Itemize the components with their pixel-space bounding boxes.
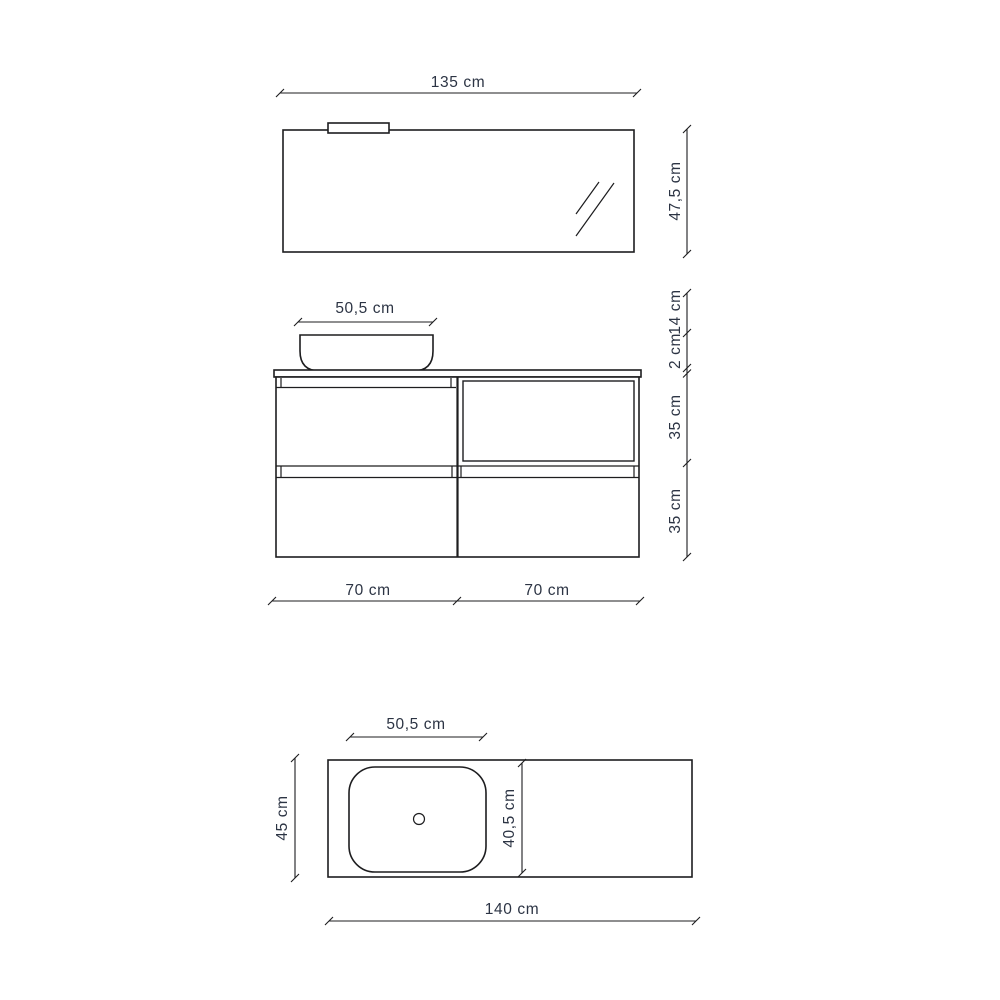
countertop-thickness-label: 2 cm (667, 333, 684, 369)
basin-depth-label: 40,5 cm (501, 788, 518, 847)
left-cabinet-width-label: 70 cm (345, 582, 390, 599)
countertop-basin-front (300, 335, 433, 371)
mirror-width-label: 135 cm (431, 74, 485, 91)
basin-width-top-label: 50,5 cm (386, 716, 445, 733)
mirror-height-label: 47,5 cm (667, 161, 684, 220)
vanity-front-view: 50,5 cm 14 cm 2 cm 35 cm (268, 289, 691, 605)
dim-mirror-height: 47,5 cm (667, 125, 691, 258)
right-cabinet-width-label: 70 cm (524, 582, 569, 599)
dim-countertop-width: 140 cm (325, 901, 700, 925)
countertop-front (274, 370, 641, 377)
mirror (283, 130, 634, 252)
countertop-width-label: 140 cm (485, 901, 539, 918)
dim-mirror-width: 135 cm (276, 74, 641, 97)
countertop-depth-label: 45 cm (274, 795, 291, 840)
basin-height-label: 14 cm (667, 289, 684, 334)
basin-top (349, 767, 486, 872)
countertop-top-view: 50,5 cm 40,5 cm 45 cm 140 cm (274, 716, 700, 925)
diagram-page: 135 cm 47,5 cm 50,5 cm (0, 0, 1000, 1000)
dim-basin-width-front: 50,5 cm (294, 300, 437, 326)
dim-height-chain: 14 cm 2 cm 35 cm 35 cm (667, 289, 691, 561)
dim-unit-width: 70 cm 70 cm (268, 582, 644, 605)
dimension-diagram: 135 cm 47,5 cm 50,5 cm (0, 0, 1000, 1000)
dim-basin-width-top: 50,5 cm (346, 716, 487, 741)
lower-drawer-height-label: 35 cm (667, 488, 684, 533)
mirror-front-view: 135 cm 47,5 cm (276, 74, 691, 258)
upper-drawer-height-label: 35 cm (667, 394, 684, 439)
light-fixture (328, 123, 389, 133)
dim-countertop-depth: 45 cm (274, 754, 299, 882)
basin-width-label: 50,5 cm (335, 300, 394, 317)
